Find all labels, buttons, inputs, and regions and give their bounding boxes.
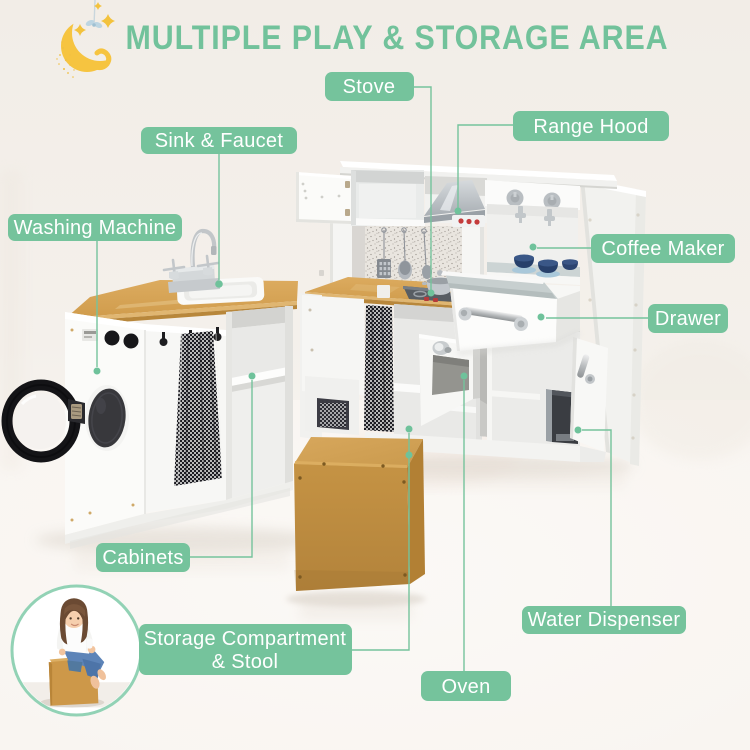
svg-text:Cabinets: Cabinets: [102, 547, 183, 569]
svg-text:Washing Machine: Washing Machine: [14, 217, 177, 239]
svg-text:Sink & Faucet: Sink & Faucet: [155, 130, 284, 152]
svg-text:Water Dispenser: Water Dispenser: [528, 609, 681, 631]
svg-text:Coffee Maker: Coffee Maker: [601, 238, 724, 260]
svg-text:Drawer: Drawer: [655, 308, 721, 330]
svg-text:Range Hood: Range Hood: [533, 116, 648, 138]
svg-text:MULTIPLE PLAY & STORAGE AREA: MULTIPLE PLAY & STORAGE AREA: [126, 19, 669, 57]
svg-text:Stove: Stove: [343, 76, 396, 98]
svg-text:Oven: Oven: [441, 676, 490, 698]
svg-text:& Stool: & Stool: [212, 651, 279, 673]
svg-text:Storage Compartment: Storage Compartment: [144, 628, 347, 650]
